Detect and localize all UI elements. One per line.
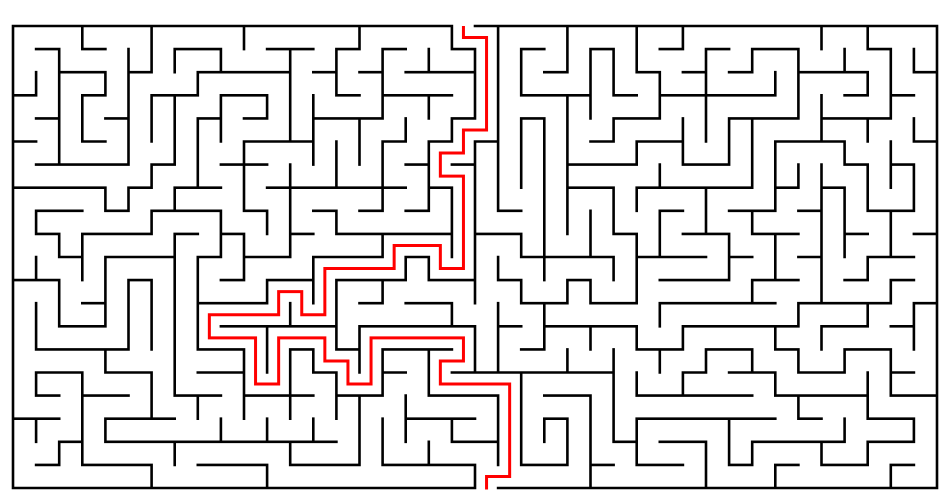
maze-walls — [13, 26, 937, 488]
maze-svg — [0, 0, 951, 500]
maze-puzzle-page — [0, 0, 951, 500]
